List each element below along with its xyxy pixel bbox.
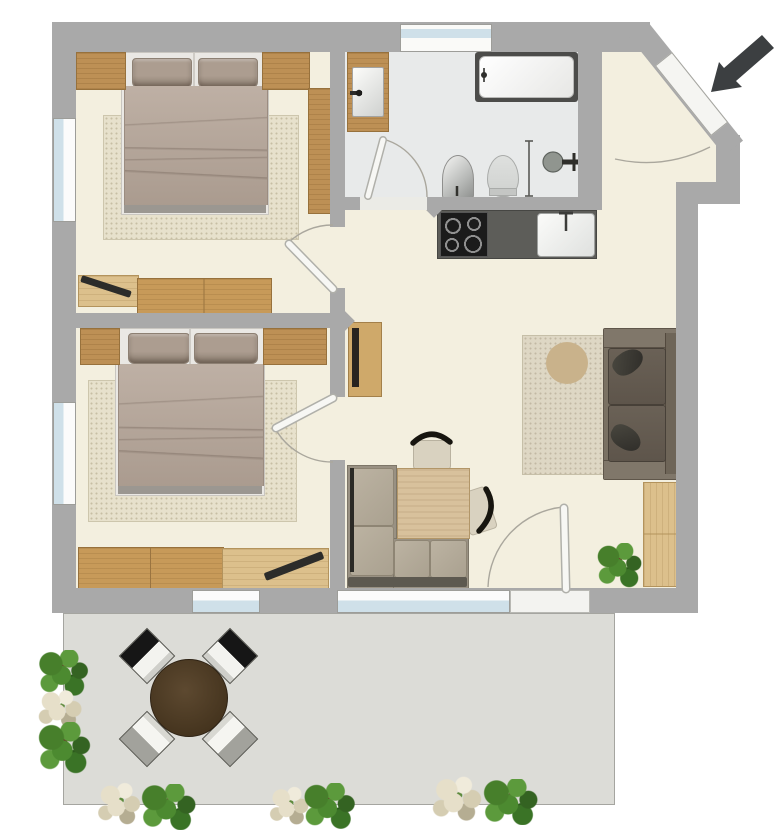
bathroom-window	[400, 24, 492, 52]
bedroom-2-dresser-right	[263, 328, 327, 365]
headboard-divider	[193, 53, 195, 86]
rug-circle-motif	[546, 342, 588, 384]
wall-bedroom-1-east-upper	[330, 52, 345, 227]
bedroom-1-door-opening	[330, 227, 345, 288]
bedroom-2-door-opening	[330, 397, 345, 460]
bedroom-2-window	[53, 402, 76, 505]
tv-icon	[352, 328, 359, 387]
bedroom-1-tall-cabinet	[308, 88, 332, 214]
bed-foot-board	[118, 486, 262, 494]
kitchen-sink	[537, 213, 595, 257]
toilet-cistern	[489, 188, 517, 196]
wall-bedroom-2-east-upper	[330, 328, 345, 397]
wall-bedroom-divider	[52, 313, 345, 328]
headboard-divider	[189, 329, 191, 364]
bench-base-strip	[348, 577, 467, 587]
dining-chair-top	[413, 440, 451, 470]
plant-cluster	[38, 722, 92, 774]
bench-backrest-line	[350, 468, 354, 572]
bidet	[442, 155, 474, 199]
terrace-door-opening	[510, 590, 590, 613]
bedroom-2-bottom-window	[192, 590, 260, 613]
plant-cluster	[430, 776, 486, 822]
plant-cluster	[482, 779, 540, 825]
bathroom-door-opening	[360, 197, 427, 210]
plant-cluster	[140, 784, 198, 830]
bed-foot-board	[124, 205, 266, 213]
sofa	[603, 328, 679, 480]
bench-cushion	[350, 526, 394, 576]
bench-cushion	[350, 468, 394, 526]
potted-plant	[597, 543, 643, 588]
cooktop-icon	[440, 212, 488, 257]
bathtub	[475, 52, 578, 102]
living-room-window	[337, 590, 510, 613]
bedroom-1-nightstand-right	[262, 52, 310, 90]
duvet	[124, 86, 268, 205]
pillow	[194, 333, 258, 364]
living-sideboard	[643, 482, 678, 587]
wall-bedroom-2-east-lower	[330, 460, 345, 588]
floor-plan	[0, 0, 784, 839]
bedroom-2-wardrobe	[78, 547, 224, 589]
wall-bathroom-bottom-right	[427, 197, 602, 210]
bedroom-1-bed	[121, 52, 269, 215]
wall-bathroom-right	[578, 52, 602, 210]
bedroom-1-wardrobe	[137, 278, 272, 314]
pillow	[132, 58, 192, 88]
plant-cluster	[303, 783, 357, 829]
terrace-round-table	[150, 659, 228, 737]
pillow	[128, 333, 190, 364]
bench-cushion	[394, 540, 430, 578]
bedroom-2-bed	[115, 328, 265, 496]
duvet	[118, 364, 264, 486]
wall-right	[676, 204, 698, 588]
bench-cushion	[430, 540, 467, 578]
wall-top	[52, 22, 650, 52]
bedroom-2-nightstand-left	[80, 328, 120, 365]
bedroom-1-nightstand-left	[76, 52, 126, 90]
plant-cluster	[96, 782, 144, 826]
pillow	[198, 58, 258, 88]
bathtub-basin	[479, 56, 574, 98]
wall-bathroom-bottom-left	[345, 197, 360, 210]
living-rug	[522, 335, 605, 475]
vanity-sink	[352, 67, 384, 117]
wall-bedroom-1-east-lower	[330, 288, 345, 315]
dining-table	[397, 468, 470, 539]
bedroom-1-window	[53, 118, 76, 222]
